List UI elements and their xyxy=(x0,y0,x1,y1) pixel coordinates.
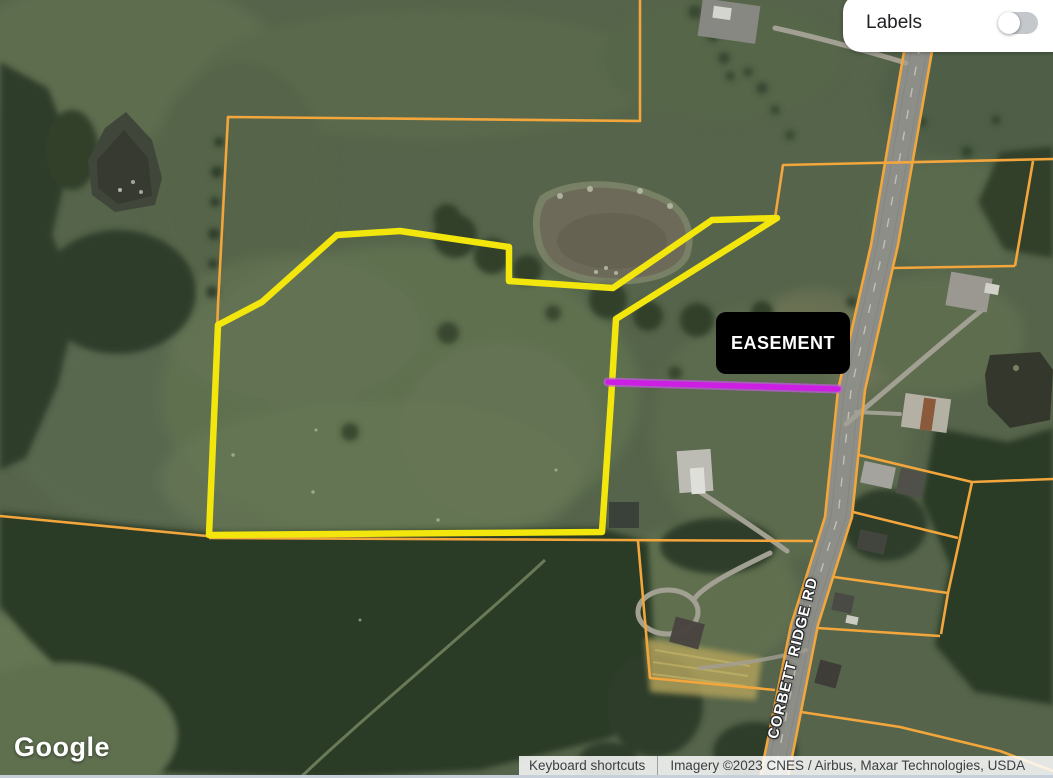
parcel-boundary-line xyxy=(788,40,934,778)
parcel-boundary-line xyxy=(1015,161,1033,266)
map-canvas[interactable]: CORBETT RIDGE RD EASEMENT Labels Google … xyxy=(0,0,1053,778)
selected-parcel-outline xyxy=(209,218,777,535)
attribution-bar: Keyboard shortcuts Imagery ©2023 CNES / … xyxy=(519,756,1053,775)
labels-control-card: Labels xyxy=(843,0,1053,52)
parcel-boundary-line xyxy=(834,577,948,593)
google-logo[interactable]: Google xyxy=(14,732,110,763)
labels-toggle[interactable] xyxy=(998,12,1038,34)
selected-parcel xyxy=(209,218,777,535)
parcel-boundary-line xyxy=(859,455,1053,482)
parcel-boundary-line xyxy=(210,0,640,520)
parcel-boundary-line xyxy=(817,628,940,636)
parcel-boundary-line xyxy=(638,541,775,690)
easement-line xyxy=(608,382,838,389)
easement-overlay xyxy=(608,382,838,389)
parcel-boundary-line xyxy=(0,516,207,536)
parcel-boundary-line xyxy=(941,482,972,634)
easement-label: EASEMENT xyxy=(716,312,850,374)
parcel-boundaries xyxy=(0,0,1053,778)
parcel-boundary-line xyxy=(209,538,813,541)
imagery-attribution: Imagery ©2023 CNES / Airbus, Maxar Techn… xyxy=(658,758,1025,773)
parcel-overlay xyxy=(0,0,1053,778)
toggle-knob xyxy=(998,12,1020,34)
parcel-boundary-line xyxy=(892,266,1015,268)
keyboard-shortcuts-button[interactable]: Keyboard shortcuts xyxy=(519,758,657,773)
parcel-boundary-line xyxy=(853,512,958,538)
labels-toggle-label: Labels xyxy=(866,12,922,34)
parcel-boundary-line xyxy=(775,159,1053,218)
